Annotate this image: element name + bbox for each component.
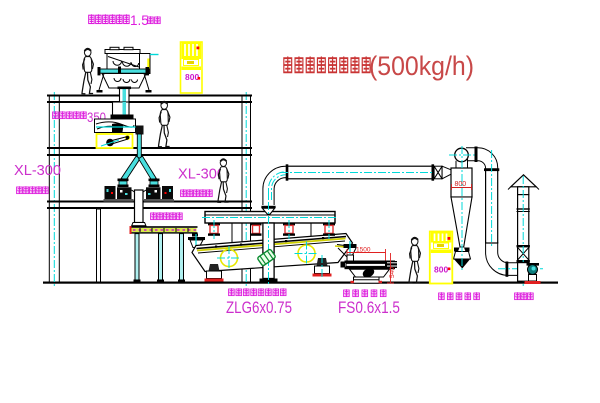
svg-text:800: 800 bbox=[434, 265, 448, 275]
svg-text:1.5: 1.5 bbox=[130, 13, 149, 28]
svg-text:ZLG6x0.75: ZLG6x0.75 bbox=[226, 298, 292, 317]
svg-text:1500: 1500 bbox=[356, 247, 371, 254]
svg-text:XL-300: XL-300 bbox=[14, 162, 61, 179]
svg-text:XL-300: XL-300 bbox=[178, 166, 225, 183]
svg-text:800: 800 bbox=[455, 181, 467, 188]
svg-text:540: 540 bbox=[389, 267, 396, 278]
svg-text:(500kg/h): (500kg/h) bbox=[369, 51, 474, 81]
svg-text:800: 800 bbox=[185, 72, 199, 82]
svg-text:FS0.6x1.5: FS0.6x1.5 bbox=[338, 298, 400, 317]
